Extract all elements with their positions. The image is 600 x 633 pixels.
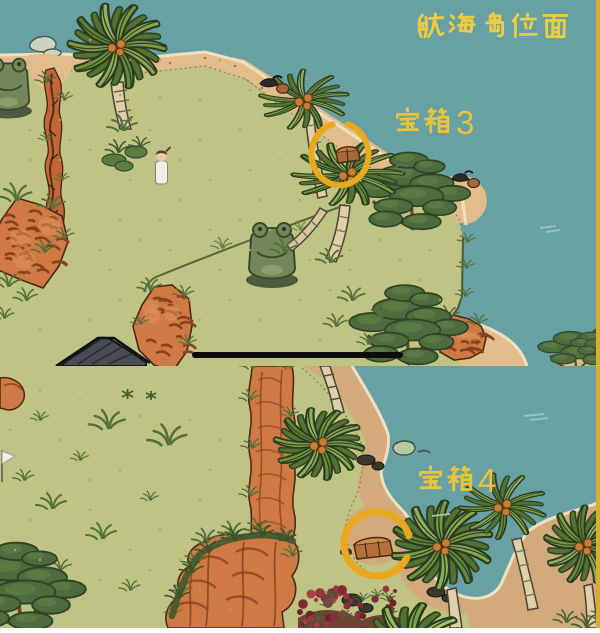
svg-text:4: 4 (478, 462, 496, 499)
svg-text:3: 3 (456, 104, 474, 141)
